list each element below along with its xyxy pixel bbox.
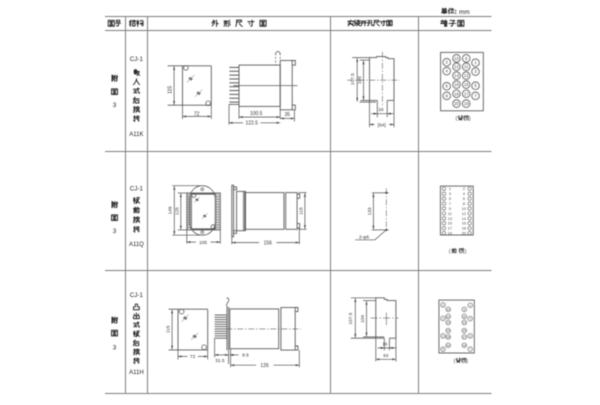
svg-text:115: 115: [168, 86, 174, 94]
svg-text:5: 5: [474, 83, 477, 88]
svg-text:13: 13: [463, 321, 467, 325]
svg-text:20: 20: [462, 232, 466, 236]
svg-text:): ): [466, 359, 468, 365]
svg-text:3: 3: [469, 317, 471, 321]
svg-text:104: 104: [360, 315, 366, 323]
svg-text:19: 19: [463, 343, 467, 347]
svg-text:2: 2: [463, 187, 465, 191]
svg-text:(: (: [456, 116, 458, 122]
svg-text:3: 3: [113, 102, 117, 109]
svg-text:12: 12: [462, 212, 466, 216]
svg-text:17: 17: [448, 227, 452, 231]
svg-text:9: 9: [463, 308, 465, 312]
svg-text:20: 20: [447, 343, 451, 347]
svg-text:15: 15: [464, 82, 469, 87]
svg-text:105: 105: [199, 240, 207, 246]
svg-text:126: 126: [260, 363, 269, 369]
svg-text:15: 15: [448, 222, 452, 226]
svg-text:5: 5: [449, 197, 451, 201]
svg-text:107.5: 107.5: [348, 312, 354, 324]
svg-text:A11Q: A11Q: [129, 242, 144, 248]
svg-text:12: 12: [454, 64, 459, 69]
svg-text:115: 115: [166, 325, 172, 333]
svg-text:13: 13: [464, 73, 469, 78]
svg-text:(: (: [449, 249, 451, 255]
svg-text:156: 156: [264, 241, 273, 247]
svg-text:3: 3: [113, 228, 117, 235]
svg-text:6: 6: [446, 84, 449, 89]
svg-text:18: 18: [454, 91, 459, 96]
svg-text:8: 8: [463, 202, 465, 206]
svg-text:31.5: 31.5: [215, 358, 225, 364]
svg-text:8: 8: [446, 93, 449, 98]
svg-text:3: 3: [449, 192, 451, 196]
svg-text:2-φ6: 2-φ6: [359, 234, 369, 240]
svg-text:A11K: A11K: [129, 132, 143, 138]
svg-text:13: 13: [448, 217, 452, 221]
svg-text:115: 115: [299, 207, 305, 215]
svg-text:133: 133: [367, 207, 373, 215]
svg-text:19: 19: [464, 101, 469, 106]
svg-text:6: 6: [442, 334, 444, 338]
svg-text:8: 8: [442, 347, 444, 351]
svg-text:35: 35: [285, 112, 291, 118]
svg-text:2: 2: [446, 60, 449, 65]
svg-text:9.5: 9.5: [242, 353, 249, 359]
svg-text:5: 5: [469, 334, 471, 338]
svg-text:10: 10: [462, 207, 466, 211]
svg-text:6: 6: [463, 197, 465, 201]
svg-text:15: 15: [463, 329, 467, 333]
svg-text:72: 72: [190, 354, 196, 360]
svg-text:[64]: [64]: [378, 122, 386, 128]
svg-text:CJ-1: CJ-1: [130, 186, 144, 193]
svg-text:3: 3: [113, 345, 117, 352]
svg-text:122.5: 122.5: [245, 121, 258, 127]
svg-text:125: 125: [174, 207, 180, 215]
svg-text:14: 14: [462, 217, 466, 221]
svg-text:16: 16: [382, 342, 388, 347]
svg-text:11: 11: [448, 212, 452, 216]
svg-text:(: (: [454, 359, 456, 365]
svg-text:17: 17: [463, 335, 467, 339]
svg-text:4: 4: [463, 192, 465, 196]
svg-text:1: 1: [449, 187, 451, 191]
svg-text:CJ-1: CJ-1: [130, 292, 144, 299]
svg-text:4: 4: [442, 317, 444, 321]
svg-text:4: 4: [446, 69, 449, 74]
svg-text:16: 16: [454, 82, 459, 87]
svg-text:149: 149: [168, 206, 174, 214]
svg-text:107.5: 107.5: [350, 73, 356, 85]
svg-text:10: 10: [447, 308, 451, 312]
svg-text:19: 19: [448, 232, 452, 236]
svg-text:1: 1: [469, 303, 471, 307]
svg-text:): ): [465, 249, 467, 255]
svg-text:9: 9: [449, 207, 451, 211]
svg-text:14: 14: [447, 321, 451, 325]
svg-text:12: 12: [447, 315, 451, 319]
svg-text:72: 72: [194, 111, 200, 117]
svg-text:7: 7: [474, 93, 477, 98]
svg-text:): ): [469, 116, 471, 122]
svg-text:CJ-1: CJ-1: [130, 56, 144, 63]
svg-text:9: 9: [465, 56, 468, 61]
svg-text:16: 16: [447, 329, 451, 333]
svg-text:2: 2: [442, 303, 444, 307]
svg-text:3: 3: [474, 69, 477, 74]
svg-text:mm: mm: [459, 9, 470, 16]
svg-text:14: 14: [454, 73, 459, 78]
svg-text:16: 16: [378, 107, 384, 113]
svg-text:7: 7: [469, 347, 471, 351]
svg-text:1: 1: [474, 60, 477, 65]
svg-text:100.5: 100.5: [250, 111, 263, 117]
svg-text:18: 18: [447, 335, 451, 339]
svg-text:64: 64: [383, 353, 389, 358]
svg-text:16: 16: [462, 222, 466, 226]
svg-text:A11H: A11H: [129, 370, 144, 376]
svg-text:17: 17: [464, 91, 469, 96]
svg-text:11: 11: [463, 315, 466, 319]
svg-text:10: 10: [454, 56, 459, 61]
svg-text:18: 18: [462, 227, 466, 231]
svg-text:11: 11: [464, 64, 469, 69]
svg-text:7: 7: [449, 202, 451, 206]
svg-text:20: 20: [454, 101, 459, 106]
